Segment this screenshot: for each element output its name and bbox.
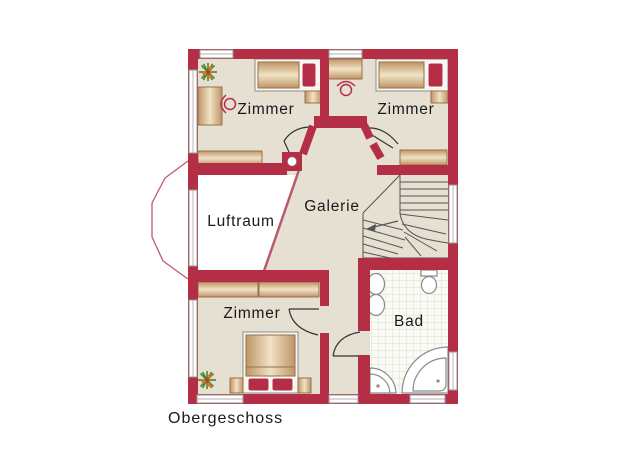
desk-icon xyxy=(328,59,362,79)
bed-icon xyxy=(255,59,321,91)
window-icon xyxy=(329,50,362,58)
floor-plan-drawing: Zimmer Zimmer Luftraum Galerie Zimmer Ba… xyxy=(0,0,640,453)
wardrobe-icon xyxy=(198,282,258,297)
bay-outline xyxy=(152,161,188,279)
nightstand-icon xyxy=(230,378,243,393)
floor-plan-page: Zimmer Zimmer Luftraum Galerie Zimmer Ba… xyxy=(0,0,640,453)
window-icon xyxy=(449,352,457,390)
plant-icon xyxy=(198,371,216,389)
wardrobe-icon xyxy=(259,282,319,297)
nightstand-icon xyxy=(305,91,321,103)
plant-icon xyxy=(199,63,217,81)
page-title: Obergeschoss xyxy=(168,410,283,427)
wardrobe-icon xyxy=(198,151,262,165)
window-icon xyxy=(189,70,197,153)
room-label-zimmer-bottom: Zimmer xyxy=(223,305,280,322)
room-label-bad: Bad xyxy=(394,313,424,330)
window-icon xyxy=(329,395,358,403)
room-label-zimmer-top-left: Zimmer xyxy=(237,101,294,118)
toilet-icon xyxy=(421,270,437,294)
window-icon xyxy=(410,395,445,403)
window-icon xyxy=(189,190,197,266)
bed-icon xyxy=(376,59,448,91)
partition-wall xyxy=(320,59,329,119)
window-icon xyxy=(189,300,197,377)
window-icon xyxy=(200,50,233,58)
nightstand-icon xyxy=(298,378,311,393)
window-icon xyxy=(449,185,457,243)
room-label-luftraum: Luftraum xyxy=(207,213,275,230)
room-label-galerie: Galerie xyxy=(304,198,360,215)
window-icon xyxy=(197,395,243,403)
room-label-zimmer-top-right: Zimmer xyxy=(377,101,434,118)
wardrobe-icon xyxy=(400,150,447,165)
double-bed-icon xyxy=(243,332,298,393)
chimney-icon xyxy=(282,152,302,171)
desk-icon xyxy=(198,87,222,125)
